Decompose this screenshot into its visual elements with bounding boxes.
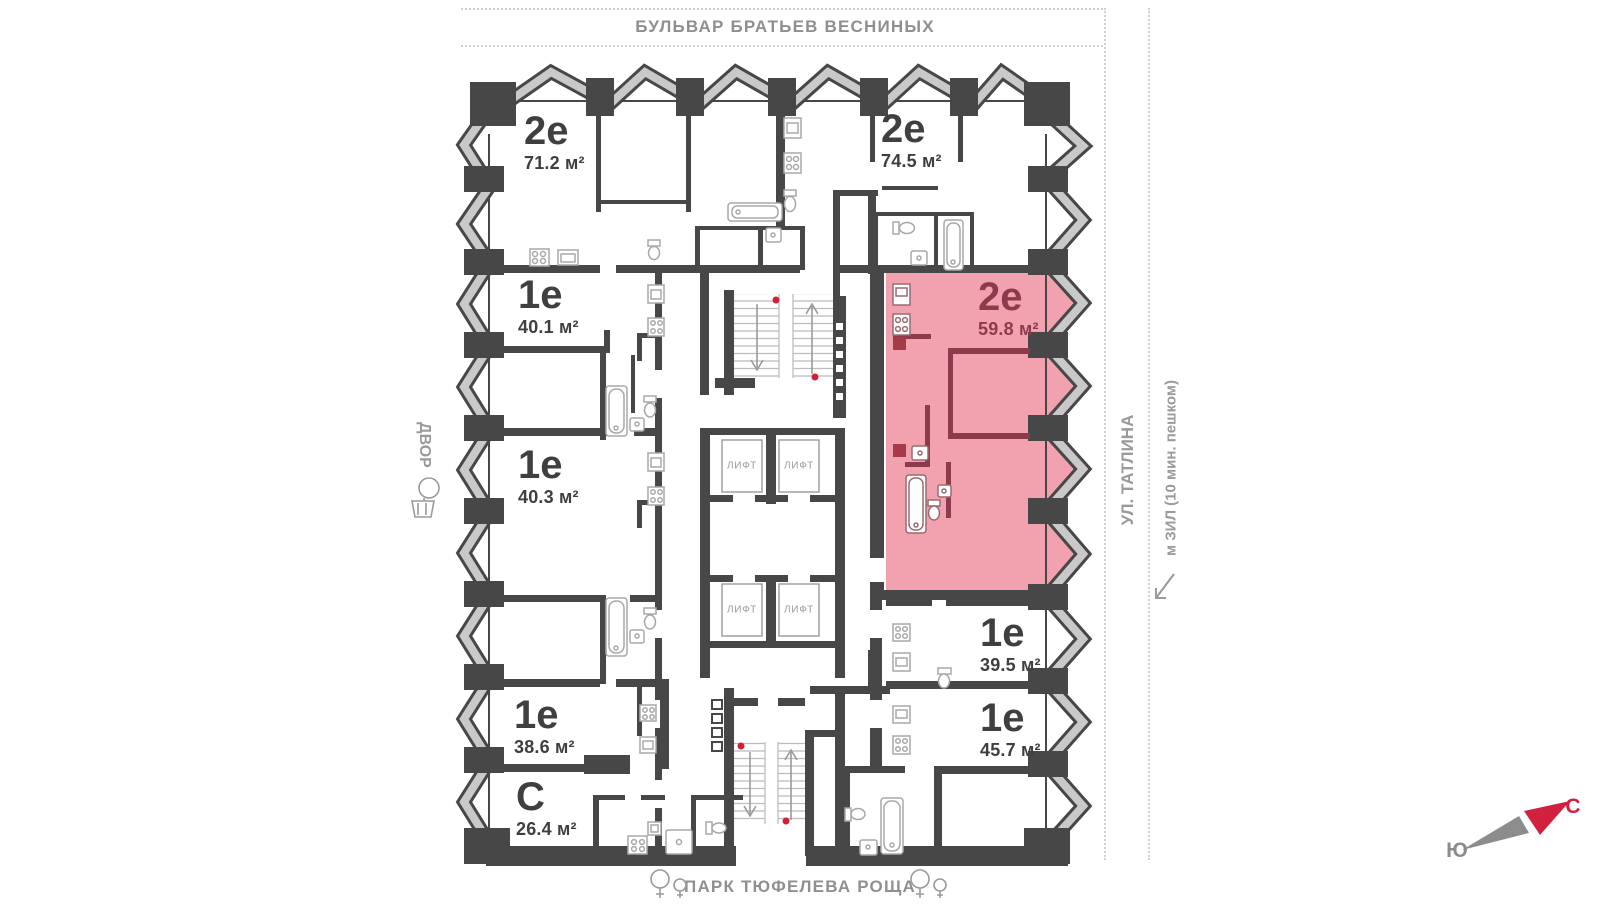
apartment-type: 1е <box>980 699 1041 737</box>
bathtub-icon <box>906 475 926 533</box>
sink-icon <box>630 630 644 643</box>
sink-icon <box>938 485 951 497</box>
fridge-icon <box>893 284 910 305</box>
elevator-label: ЛИФТ <box>727 461 757 472</box>
compass-south-label: Ю <box>1446 839 1468 863</box>
apartment-type: 2е <box>881 110 942 148</box>
stove-icon <box>648 318 664 336</box>
staircase-lower <box>734 742 806 825</box>
stove-icon <box>893 736 910 754</box>
stove-icon <box>893 314 910 335</box>
apartment-type: 2е <box>978 278 1039 316</box>
toilet-icon <box>648 240 660 260</box>
apartment-unit-40-1[interactable]: 1е 40.1 м² <box>518 276 579 338</box>
toilet-icon <box>938 668 951 688</box>
metro-arrow-icon <box>1156 574 1174 598</box>
sink-icon <box>630 418 644 431</box>
bathtub-icon <box>944 220 963 270</box>
apartment-unit-45-7[interactable]: 1е 45.7 м² <box>980 699 1041 761</box>
sink-icon <box>912 446 928 460</box>
compass-needle <box>1462 801 1570 850</box>
bathtub-icon <box>606 598 627 656</box>
apartment-type: 1е <box>518 276 579 314</box>
oven-icon <box>648 822 661 835</box>
apartment-type: 2е <box>524 112 585 150</box>
toilet-icon <box>644 396 656 417</box>
apartment-unit-40-3[interactable]: 1е 40.3 м² <box>518 446 579 508</box>
apartment-area: 59.8 м² <box>978 319 1039 340</box>
elevator-label: ЛИФТ <box>727 605 757 616</box>
apartment-unit-59-8-selected[interactable]: 2е 59.8 м² <box>978 278 1039 340</box>
oven-icon <box>648 285 664 303</box>
bathtub-icon <box>728 203 782 221</box>
toilet-icon <box>845 808 865 821</box>
apartment-area: 71.2 м² <box>524 153 585 174</box>
apartment-type: 1е <box>980 614 1041 652</box>
apartment-area: 40.1 м² <box>518 317 579 338</box>
stove-icon <box>628 836 647 854</box>
stove-icon <box>648 487 664 505</box>
oven-icon <box>784 118 801 138</box>
apartment-type: С <box>516 778 577 816</box>
bathtub-icon <box>606 386 627 436</box>
apartment-type: 1е <box>518 446 579 484</box>
apartment-unit-26-4[interactable]: С 26.4 м² <box>516 778 577 840</box>
apartment-area: 39.5 м² <box>980 655 1041 676</box>
sink-icon <box>860 840 877 855</box>
oven-icon <box>648 453 664 471</box>
tree-icon <box>651 870 946 898</box>
apartment-unit-71-2[interactable]: 2е 71.2 м² <box>524 112 585 174</box>
apartment-unit-38-6[interactable]: 1е 38.6 м² <box>514 696 575 758</box>
compass-north-label: С <box>1565 795 1580 819</box>
sink-icon <box>766 228 781 242</box>
stove-icon <box>784 153 801 173</box>
apartment-area: 26.4 м² <box>516 819 577 840</box>
apartment-unit-74-5[interactable]: 2е 74.5 м² <box>881 110 942 172</box>
elevator-label: ЛИФТ <box>784 605 814 616</box>
bathtub-icon <box>881 798 903 854</box>
oven-icon <box>893 653 910 671</box>
toilet-icon <box>928 500 940 520</box>
stove-icon <box>893 624 910 641</box>
oven-icon <box>640 737 656 753</box>
toilet-icon <box>706 822 726 834</box>
shower-icon <box>666 830 692 854</box>
apartment-type: 1е <box>514 696 575 734</box>
stove-icon <box>530 249 549 266</box>
courtyard-icon <box>412 478 439 517</box>
sink-icon <box>911 251 927 265</box>
apartment-area: 45.7 м² <box>980 740 1041 761</box>
oven-icon <box>558 250 578 265</box>
staircase-upper <box>734 294 833 381</box>
elevator-label: ЛИФТ <box>784 461 814 472</box>
apartment-area: 40.3 м² <box>518 487 579 508</box>
oven-icon <box>893 706 910 723</box>
floorplan-page: БУЛЬВАР БРАТЬЕВ ВЕСНИНЫХ УЛ. ТАТЛИНА м З… <box>0 0 1600 920</box>
stove-icon <box>640 705 656 721</box>
toilet-icon <box>644 608 656 629</box>
apartment-area: 38.6 м² <box>514 737 575 758</box>
apartment-unit-39-5[interactable]: 1е 39.5 м² <box>980 614 1041 676</box>
apartment-area: 74.5 м² <box>881 151 942 172</box>
toilet-icon <box>784 190 796 212</box>
toilet-icon <box>893 222 915 234</box>
